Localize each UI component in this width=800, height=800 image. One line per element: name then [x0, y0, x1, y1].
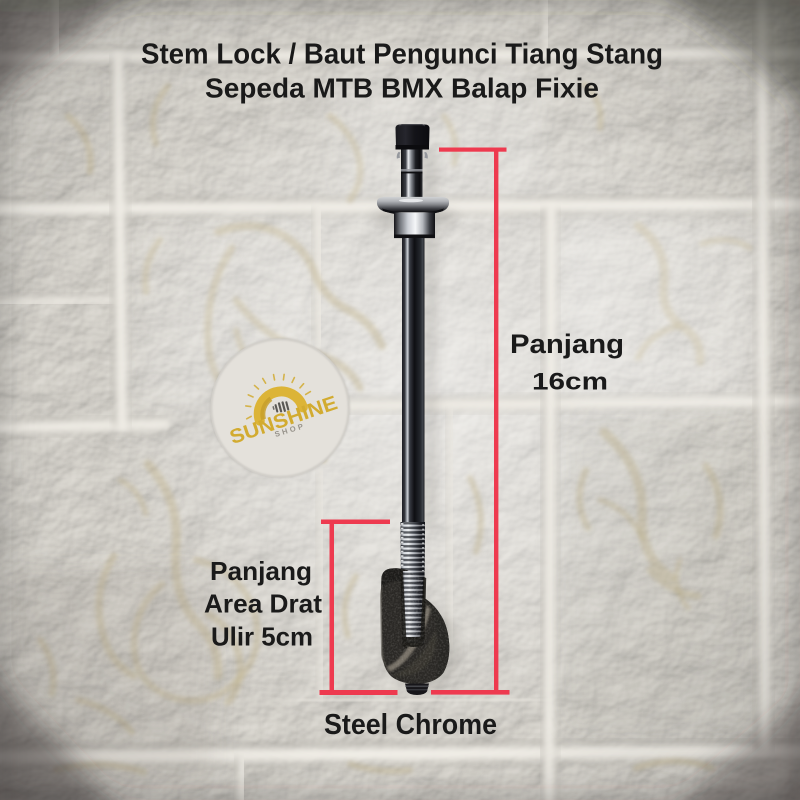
svg-text:Sepeda MTB BMX Balap Fixie: Sepeda MTB BMX Balap Fixie [205, 73, 599, 104]
svg-text:Panjang: Panjang [510, 329, 624, 359]
svg-text:Area Drat: Area Drat [204, 589, 322, 619]
svg-text:Ulir 5cm: Ulir 5cm [211, 622, 313, 652]
svg-text:Steel Chrome: Steel Chrome [324, 709, 497, 741]
svg-text:Stem Lock / Baut Pengunci Tian: Stem Lock / Baut Pengunci Tiang Stang [141, 39, 663, 71]
svg-text:16cm: 16cm [532, 369, 608, 396]
svg-text:Panjang: Panjang [210, 556, 312, 586]
